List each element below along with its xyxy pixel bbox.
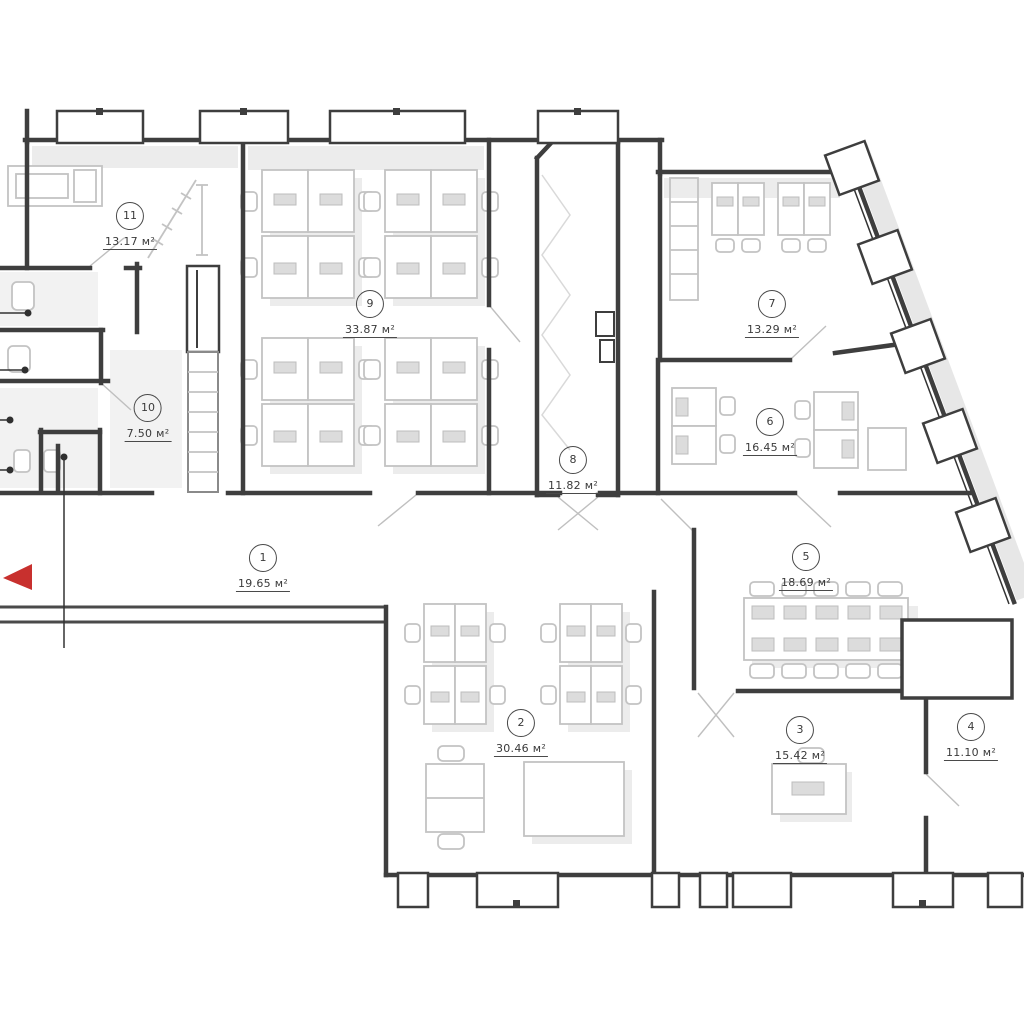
room-area-text: 15.42 м² — [773, 749, 827, 764]
room-label-11: 1113.17 м² — [103, 202, 157, 250]
room-label-4: 411.10 м² — [944, 713, 998, 761]
room-label-9: 933.87 м² — [343, 290, 397, 338]
room-label-7: 713.29 м² — [745, 290, 799, 338]
room-area-text: 7.50 м² — [125, 427, 172, 442]
room-area-text: 13.17 м² — [103, 235, 157, 250]
room-number-badge: 7 — [758, 290, 786, 318]
room-area-text: 19.65 м² — [236, 577, 290, 592]
room-area-text: 11.10 м² — [944, 746, 998, 761]
room-area-text: 16.45 м² — [743, 441, 797, 456]
room-number-badge: 10 — [134, 394, 162, 422]
room-label-8: 811.82 м² — [546, 446, 600, 494]
room-label-1: 119.65 м² — [236, 544, 290, 592]
room-number-badge: 6 — [756, 408, 784, 436]
room-number-badge: 11 — [116, 202, 144, 230]
room-number-badge: 4 — [957, 713, 985, 741]
room-number-badge: 9 — [356, 290, 384, 318]
room-label-2: 230.46 м² — [494, 709, 548, 757]
room-area-text: 13.29 м² — [745, 323, 799, 338]
room-area-text: 11.82 м² — [546, 479, 600, 494]
room-label-3: 315.42 м² — [773, 716, 827, 764]
room-number-badge: 1 — [249, 544, 277, 572]
room-number-badge: 2 — [507, 709, 535, 737]
room-label-6: 616.45 м² — [743, 408, 797, 456]
room-number-badge: 5 — [792, 543, 820, 571]
room-area-text: 18.69 м² — [779, 576, 833, 591]
floor-plan-drawing — [0, 0, 1024, 1024]
room-label-10: 107.50 м² — [125, 394, 172, 442]
room-area-text: 30.46 м² — [494, 742, 548, 757]
entrance-arrow-icon — [3, 564, 32, 590]
room-number-badge: 8 — [559, 446, 587, 474]
room-number-badge: 3 — [786, 716, 814, 744]
room-area-text: 33.87 м² — [343, 323, 397, 338]
floor-plan-canvas: 119.65 м²230.46 м²315.42 м²411.10 м²518.… — [0, 0, 1024, 1024]
room-label-5: 518.69 м² — [779, 543, 833, 591]
